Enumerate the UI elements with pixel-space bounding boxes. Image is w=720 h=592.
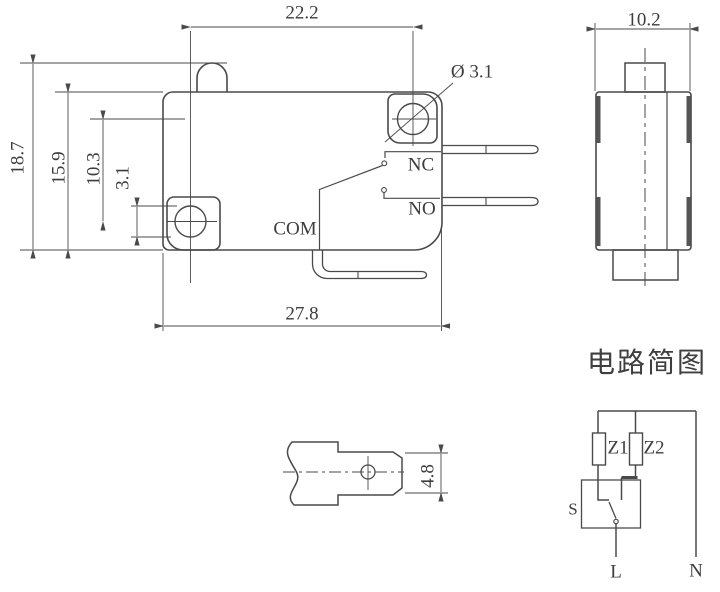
resistor-z2	[630, 433, 643, 465]
side-rail	[597, 96, 601, 143]
contact-point-no	[382, 188, 387, 193]
com-lever	[320, 166, 383, 251]
side-rail	[687, 197, 691, 246]
dim-label-10-2: 10.2	[627, 11, 660, 30]
circuit-title: 电路简图	[587, 349, 707, 377]
switch-box	[582, 480, 641, 528]
front-view	[163, 63, 538, 279]
switch-blade	[609, 502, 616, 519]
dim-label-hole-diameter: Ø 3.1	[451, 63, 493, 82]
circuit-label-line: L	[610, 563, 622, 582]
plunger	[197, 63, 227, 92]
circuit-label-z1: Z1	[607, 439, 628, 458]
terminal-blade-outline	[287, 442, 402, 505]
side-body	[596, 92, 691, 250]
dim-label-10-3: 10.3	[85, 152, 104, 185]
contact-no-line	[384, 193, 440, 199]
terminal-label-nc: NC	[408, 156, 434, 175]
dim-label-15-9: 15.9	[50, 151, 69, 184]
terminal-label-com: COM	[273, 220, 316, 239]
dim-label-18-7: 18.7	[9, 141, 28, 174]
terminal-pin-nc	[442, 146, 538, 154]
dim-label-27-8: 27.8	[285, 305, 318, 324]
dim-label-22-2: 22.2	[285, 4, 318, 23]
contact-point-nc	[382, 161, 387, 166]
technical-drawing-page: 22.2 18.7 15.9 10.3 3.1 Ø 3.1 27.8 NC NO…	[0, 0, 720, 592]
side-view	[595, 23, 691, 290]
drawing-linework	[0, 0, 720, 592]
resistor-z1	[593, 433, 606, 465]
terminal-pin-no	[442, 198, 538, 206]
circuit-label-switch: S	[568, 501, 577, 518]
switch-pivot	[614, 519, 618, 523]
terminal-pin-com	[313, 250, 427, 279]
circuit-label-z2: Z2	[643, 439, 664, 458]
dim-label-4-8: 4.8	[419, 464, 438, 488]
circuit-diagram	[582, 411, 697, 557]
side-rail	[687, 96, 691, 143]
terminal-label-no: NO	[408, 200, 435, 219]
circuit-label-neutral: N	[689, 562, 703, 581]
dim-label-3-1: 3.1	[114, 166, 133, 190]
side-rail	[597, 197, 601, 246]
